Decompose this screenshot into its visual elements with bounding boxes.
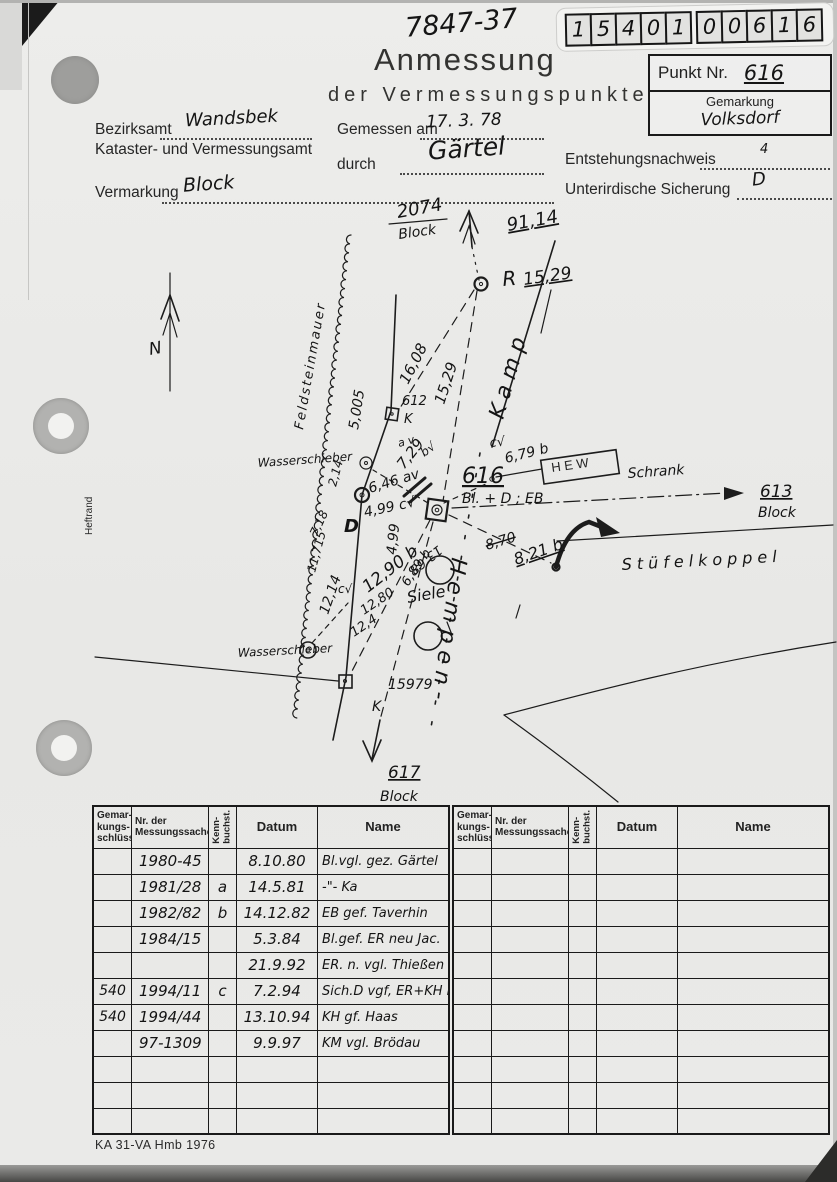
table-cell: 1994/44: [132, 1004, 209, 1030]
north-arrow: [161, 273, 179, 391]
table-row: [453, 926, 829, 952]
table-cell: [209, 926, 237, 952]
table-cell: Bl.gef. ER neu Jac.: [318, 926, 450, 952]
table-cell: [678, 978, 830, 1004]
vermarkung-label: Vermarkung: [95, 184, 179, 202]
table-row: [453, 978, 829, 1004]
table-cell: KH gf. Haas: [318, 1004, 450, 1030]
table-row: [453, 952, 829, 978]
table-cell: Bl.vgl. gez. Gärtel: [318, 848, 450, 874]
header-row: Gemar- kungs- schlüsselNr. der Messungss…: [453, 806, 829, 848]
table-cell: 7.2.94: [237, 978, 318, 1004]
column-header: Name: [318, 806, 450, 848]
table-cell: [492, 1004, 569, 1030]
table-cell: [209, 848, 237, 874]
table-row: 97-13099.9.97KM vgl. Brödau: [93, 1030, 449, 1056]
table-cell: a: [209, 874, 237, 900]
table-cell: [492, 1082, 569, 1108]
scan-edge-right: [833, 0, 837, 1182]
table-cell: [569, 952, 597, 978]
table-cell: [492, 874, 569, 900]
sketch-label: 15,29: [522, 263, 573, 290]
table-cell: [237, 1056, 318, 1082]
table-cell: [132, 1056, 209, 1082]
form-subtitle: der Vermessungspunkte: [328, 84, 649, 107]
sketch-label: Block: [397, 222, 438, 243]
sketch-labels: 2074Block91,14R15,2916,0815,29612K5,005W…: [84, 195, 797, 805]
table-cell: 1984/15: [132, 926, 209, 952]
dotted-line: [400, 172, 544, 175]
digit-cell: 0: [696, 10, 724, 44]
sketch-label: 12,80: [358, 585, 397, 618]
sketch-label: Stüfelkoppel: [621, 547, 782, 574]
feldsteinmauer-wall: [293, 235, 351, 718]
table-row: 1984/155.3.84Bl.gef. ER neu Jac.: [93, 926, 449, 952]
sketch-label: 2,14: [325, 458, 345, 487]
fence-line: [333, 295, 396, 740]
table-cell: [597, 926, 678, 952]
table-cell: [569, 1056, 597, 1082]
table-row: [453, 1004, 829, 1030]
table-cell: [318, 1082, 450, 1108]
table-cell: [492, 1030, 569, 1056]
table-cell: [678, 874, 830, 900]
punkt-nr-value: 616: [744, 61, 784, 85]
column-header: Kenn- buchst.: [209, 806, 237, 848]
column-header: Gemar- kungs- schlüssel: [93, 806, 132, 848]
entstehungsnachweis-value: 4: [760, 142, 768, 157]
digit-cell: 1: [565, 13, 593, 47]
vermarkung-value: Block: [182, 171, 235, 197]
scan-edge-bottom: [0, 1165, 837, 1182]
sketch-label: 15979: [388, 677, 433, 693]
sketch-label: 16,08: [396, 340, 432, 386]
table-row: [93, 1108, 449, 1134]
table-cell: [569, 1004, 597, 1030]
unterirdische-sicherung-label: Unterirdische Sicherung: [565, 181, 730, 199]
table-cell: [569, 1108, 597, 1134]
table-cell: [678, 1108, 830, 1134]
sketch-label: 4,99 c√: [363, 494, 418, 521]
form-id-footer: KA 31-VA Hmb 1976: [95, 1138, 216, 1152]
table-cell: Sich.D vgf, ER+KH neu Haas: [318, 978, 450, 1004]
sketch-label: 15,29: [431, 360, 461, 406]
table-cell: [453, 848, 492, 874]
sketch-label: Hempen-: [425, 556, 471, 708]
table-cell: [492, 1056, 569, 1082]
table-cell: [453, 900, 492, 926]
table-cell: [569, 900, 597, 926]
measurement-history: Gemar- kungs- schlüsselNr. der Messungss…: [92, 805, 832, 1137]
table-cell: [132, 1082, 209, 1108]
table-row: [453, 1030, 829, 1056]
scanned-survey-form: 7847-37 1540100616 Anmessung der Vermess…: [0, 0, 837, 1182]
table-row: [453, 1056, 829, 1082]
table-cell: [318, 1056, 450, 1082]
punch-hole: [33, 398, 89, 454]
table-cell: EB gef. Taverhin: [318, 900, 450, 926]
unterirdische-sicherung-value: D: [751, 168, 767, 190]
table-cell: [597, 1056, 678, 1082]
punkt-number-row: Punkt Nr. 616: [650, 56, 830, 92]
table-cell: [678, 848, 830, 874]
table-cell: [93, 874, 132, 900]
table-cell: [597, 1082, 678, 1108]
form-title: Anmessung: [374, 42, 556, 78]
sketch-label: Feldsteinmauer: [292, 301, 329, 431]
table-row: 1980-458.10.80Bl.vgl. gez. Gärtel: [93, 848, 449, 874]
dotted-line: [162, 201, 554, 204]
sketch-label: R: [501, 266, 517, 291]
table-cell: [453, 952, 492, 978]
sketch-label: 6,79 b: [503, 441, 550, 467]
table-row: 1981/28a14.5.81-"- Ka: [93, 874, 449, 900]
table-cell: [453, 1056, 492, 1082]
table-cell: [237, 1108, 318, 1134]
sketch-label: b√: [418, 439, 439, 459]
wasserschieber-upper-symbol: [360, 457, 372, 469]
header-row: Gemar- kungs- schlüsselNr. der Messungss…: [93, 806, 449, 848]
table-cell: [453, 1108, 492, 1134]
table-cell: [597, 1108, 678, 1134]
table-cell: [569, 1082, 597, 1108]
entstehungsnachweis-label: Entstehungsnachweis: [565, 151, 716, 169]
table-cell: [492, 978, 569, 1004]
sketch-label: 612: [402, 394, 427, 409]
file-number-handwritten: 7847-37: [404, 3, 519, 44]
scan-edge-top: [0, 0, 837, 3]
table-cell: [209, 1030, 237, 1056]
digit-cell: 4: [615, 12, 643, 46]
sketch-label: Schrank: [627, 462, 686, 482]
sketch-label: 12,90 b: [359, 541, 422, 597]
dotted-line: [737, 197, 832, 200]
sketch-label: 7,18: [307, 508, 331, 538]
digit-cell: 6: [796, 8, 824, 42]
table-cell: 540: [93, 978, 132, 1004]
table-cell: c: [209, 978, 237, 1004]
table-cell: [93, 1030, 132, 1056]
table-cell: 1980-45: [132, 848, 209, 874]
table-cell: [209, 1082, 237, 1108]
table-row: [453, 848, 829, 874]
point-15979: [339, 675, 352, 688]
punkt-nr-label: Punkt Nr.: [658, 63, 728, 83]
point-id-sticker: 1540100616: [557, 3, 834, 51]
sketch-label: Kamp: [485, 328, 534, 422]
digit-strip: 1540100616: [567, 8, 824, 46]
table-cell: [93, 952, 132, 978]
sketch-label: 8,21 b: [511, 534, 565, 569]
road-curve: [504, 642, 836, 715]
table-cell: [492, 926, 569, 952]
sketch-label: 12,4: [348, 612, 380, 641]
point-d: [355, 488, 369, 502]
table-cell: [93, 1108, 132, 1134]
table-cell: [93, 1056, 132, 1082]
sketch-label: a v: [396, 433, 416, 450]
table-cell: [678, 1056, 830, 1082]
sketch-label: 8,70: [483, 529, 518, 553]
table-cell: [453, 1082, 492, 1108]
column-header: Datum: [597, 806, 678, 848]
table-cell: [678, 1082, 830, 1108]
table-cell: [453, 926, 492, 952]
table-cell: [237, 1082, 318, 1108]
column-header: Gemar- kungs- schlüssel: [453, 806, 492, 848]
table-cell: [453, 1004, 492, 1030]
punkt-number-box: Punkt Nr. 616 Gemarkung Volksdorf: [648, 54, 832, 136]
table-row: 5401994/11c7.2.94Sich.D vgf, ER+KH neu H…: [93, 978, 449, 1004]
table-cell: 1982/82: [132, 900, 209, 926]
table-cell: [453, 874, 492, 900]
table-cell: [453, 978, 492, 1004]
table-cell: [209, 1056, 237, 1082]
table-row: 1982/82b14.12.82EB gef. Taverhin: [93, 900, 449, 926]
table-cell: [569, 874, 597, 900]
sketch-label: 613: [760, 482, 792, 502]
arrow-2074: [389, 211, 478, 247]
gemessen-am-value: 17. 3. 78: [426, 110, 502, 133]
sketch-label: 2074: [395, 195, 444, 223]
table-row: [453, 900, 829, 926]
table-cell: [93, 848, 132, 874]
sketch-label: c√: [489, 435, 506, 451]
table-cell: [93, 1082, 132, 1108]
sketch-label: 7,29: [393, 435, 428, 472]
gemarkung-row: Gemarkung Volksdorf: [650, 94, 830, 129]
table-cell: [678, 1004, 830, 1030]
table-cell: ER. n. vgl. Thießen: [318, 952, 450, 978]
fold-line: [28, 0, 29, 300]
table-cell: 13.10.94: [237, 1004, 318, 1030]
table-cell: [678, 926, 830, 952]
sketch-label: D: [344, 516, 359, 537]
table-row: [93, 1056, 449, 1082]
digit-cell: 0: [640, 11, 668, 45]
bezirksamt-value: Wandsbek: [185, 106, 279, 132]
digit-cell: 5: [590, 12, 618, 46]
sketch-label: Block: [758, 505, 797, 521]
table-cell: b: [209, 900, 237, 926]
durch-label: durch: [337, 156, 376, 174]
sketch-label: 617: [388, 763, 421, 783]
table-cell: [569, 1030, 597, 1056]
amt-label: Kataster- und Vermessungsamt: [95, 141, 312, 159]
table-cell: [209, 1108, 237, 1134]
sketch-label: 5,005: [346, 388, 368, 430]
table-cell: [597, 952, 678, 978]
table-cell: [492, 900, 569, 926]
table-cell: [492, 1108, 569, 1134]
table-cell: [597, 900, 678, 926]
kamp-street-line: [492, 241, 555, 447]
table-cell: 8.10.80: [237, 848, 318, 874]
siele-circles: [414, 556, 454, 650]
point-612: [385, 407, 399, 421]
table-row: [453, 874, 829, 900]
sketch-label: 12,14: [317, 573, 345, 616]
dotted-line: [160, 137, 312, 140]
sketch-label: 91,14: [505, 206, 559, 236]
scan-edge-strip: [0, 0, 22, 90]
table-row: 21.9.92ER. n. vgl. Thießen: [93, 952, 449, 978]
table-cell: KM vgl. Brödau: [318, 1030, 450, 1056]
sketch-label: 11,715: [304, 530, 328, 574]
column-header: Name: [678, 806, 830, 848]
table-row: [93, 1082, 449, 1108]
table-cell: [93, 900, 132, 926]
table-cell: 14.12.82: [237, 900, 318, 926]
arrow-617: [363, 720, 381, 761]
wasserschieber-lower-symbol: [300, 642, 316, 658]
table-cell: [492, 952, 569, 978]
digit-cell: 1: [665, 11, 693, 45]
table-row: [453, 1108, 829, 1134]
table-cell: [93, 926, 132, 952]
point-616-aux: [490, 477, 494, 481]
table-cell: 5.3.84: [237, 926, 318, 952]
gemarkung-value: Volksdorf: [650, 106, 831, 132]
table-cell: [209, 952, 237, 978]
sketch-label: Wasserschieber: [237, 641, 333, 660]
sketch-label: Block: [380, 789, 419, 805]
table-cell: [569, 926, 597, 952]
table-cell: 97-1309: [132, 1030, 209, 1056]
adhesive-dot: [51, 56, 99, 104]
sketch-label: Heftrand: [84, 497, 95, 535]
point-616-main: [426, 499, 449, 522]
table-cell: [597, 978, 678, 1004]
street-lamp-symbol: [553, 517, 621, 571]
table-cell: [597, 1030, 678, 1056]
table-cell: 540: [93, 1004, 132, 1030]
sketch-label: H E W: [550, 455, 590, 475]
table-cell: [453, 1030, 492, 1056]
table-cell: [569, 978, 597, 1004]
column-header: Datum: [237, 806, 318, 848]
table-cell: [678, 1030, 830, 1056]
point-r: [475, 278, 488, 291]
survey-sketch: 2074Block91,14R15,2916,0815,29612K5,005W…: [0, 195, 837, 815]
table-cell: [318, 1108, 450, 1134]
measurement-table-right: Gemar- kungs- schlüsselNr. der Messungss…: [452, 805, 830, 1135]
measurement-table-left: Gemar- kungs- schlüsselNr. der Messungss…: [92, 805, 450, 1135]
digit-cell: 1: [771, 8, 799, 42]
scan-corner-bottom-right: [805, 1140, 837, 1182]
sketch-label: c√: [338, 582, 353, 596]
table-cell: [569, 848, 597, 874]
surveyor-signature: Gärtel: [427, 131, 506, 165]
sketch-label: 13,68: [406, 542, 445, 577]
table-cell: [492, 848, 569, 874]
column-header: Nr. der Messungssache: [492, 806, 569, 848]
table-cell: -"- Ka: [318, 874, 450, 900]
sketch-label: N: [147, 338, 163, 360]
table-cell: [597, 874, 678, 900]
table-cell: [678, 952, 830, 978]
sketch-label: 4,99: [384, 523, 403, 556]
sketch-label: 6,89 b: [399, 547, 435, 590]
column-header: Nr. der Messungssache: [132, 806, 209, 848]
sketch-label: Wasserschieber: [257, 449, 353, 470]
sketch-label: K: [404, 412, 414, 427]
arrow-east-head: [724, 487, 744, 500]
sketch-label: Siele: [405, 581, 447, 606]
table-row: 5401994/4413.10.94KH gf. Haas: [93, 1004, 449, 1030]
table-cell: [597, 848, 678, 874]
table-cell: 1994/11: [132, 978, 209, 1004]
table-cell: [132, 952, 209, 978]
sketch-label: Bl. + D ; EB: [462, 491, 543, 507]
table-cell: 9.9.97: [237, 1030, 318, 1056]
table-cell: 14.5.81: [237, 874, 318, 900]
table-cell: 1981/28: [132, 874, 209, 900]
table-cell: 21.9.92: [237, 952, 318, 978]
table-cell: [597, 1004, 678, 1030]
column-header: Kenn- buchst.: [569, 806, 597, 848]
dash-dot-sightline: [452, 493, 726, 508]
table-cell: [132, 1108, 209, 1134]
table-cell: [209, 1004, 237, 1030]
punch-hole: [36, 720, 92, 776]
sketch-label: K: [372, 699, 383, 715]
digit-cell: 0: [721, 9, 749, 43]
sketch-label: 616: [462, 464, 504, 489]
stuefelkoppel-line: [557, 525, 833, 541]
hew-box: [541, 450, 620, 484]
sketch-label: 6,46 av: [366, 466, 422, 497]
digit-cell: 6: [746, 9, 774, 43]
table-row: [453, 1082, 829, 1108]
table-cell: [678, 900, 830, 926]
